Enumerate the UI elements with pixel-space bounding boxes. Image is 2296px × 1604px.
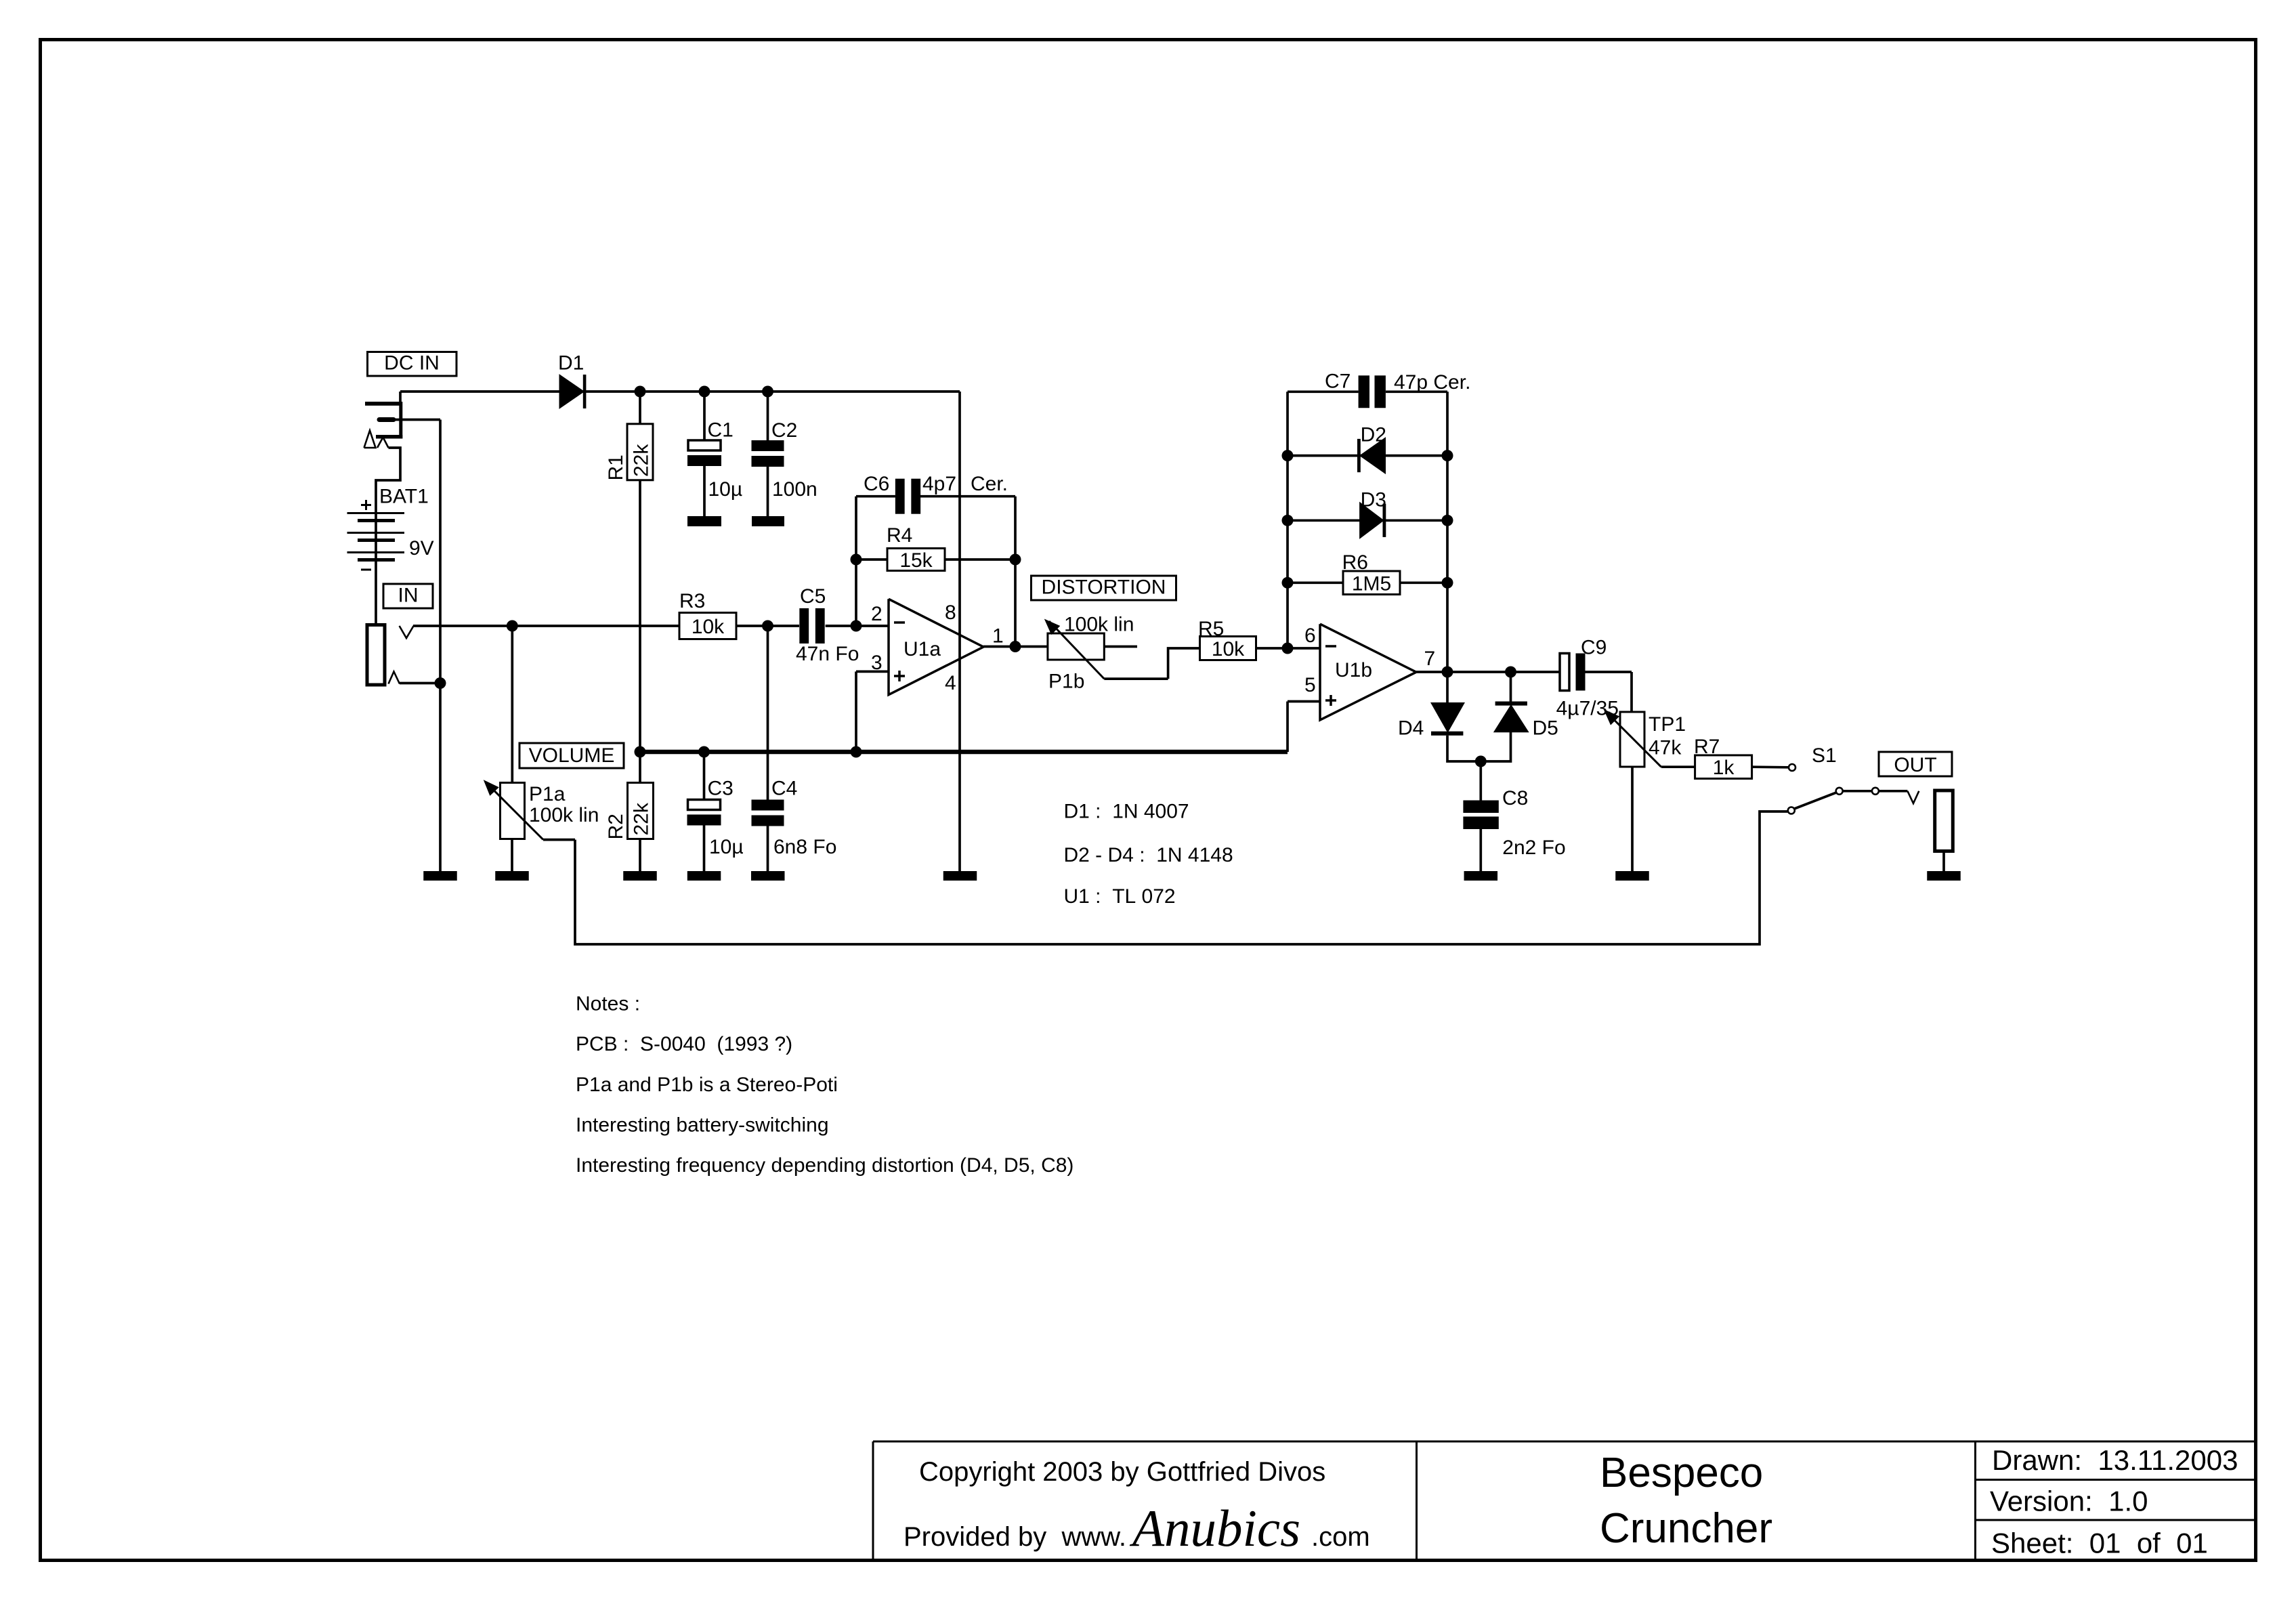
svg-text:D1: D1 [558,352,584,375]
svg-text:1: 1 [992,625,1004,648]
svg-text:22k: 22k [631,802,653,835]
svg-text:C2: C2 [771,419,797,442]
svg-text:Bespeco: Bespeco [1600,1450,1763,1496]
svg-text:TP1: TP1 [1649,713,1686,736]
svg-text:10µ: 10µ [708,478,743,501]
svg-text:PCB : S-0040 (1993 ?): PCB : S-0040 (1993 ?) [576,1033,792,1055]
svg-text:Interesting frequency dependin: Interesting frequency depending distorti… [576,1154,1073,1177]
svg-text:BAT1: BAT1 [379,486,429,508]
svg-text:Provided by www.: Provided by www. [903,1522,1126,1552]
svg-text:100k lin: 100k lin [529,804,599,826]
svg-text:VOLUME: VOLUME [529,744,615,767]
svg-text:47n Fo: 47n Fo [796,643,859,665]
svg-text:D2 - D4 : 1N 4148: D2 - D4 : 1N 4148 [1064,844,1233,866]
svg-text:4: 4 [945,672,956,694]
svg-text:D1 : 1N 4007: D1 : 1N 4007 [1064,800,1189,822]
svg-text:Copyright 2003 by Gottfried Di: Copyright 2003 by Gottfried Divos [919,1457,1325,1487]
svg-text:U1b: U1b [1335,659,1372,681]
svg-text:22k: 22k [631,444,653,477]
svg-text:1k: 1k [1713,757,1735,779]
svg-text:C6: C6 [864,473,889,495]
svg-text:C3: C3 [708,777,734,799]
svg-text:Cruncher: Cruncher [1600,1505,1772,1552]
svg-text:Cer.: Cer. [971,473,1008,495]
svg-text:DISTORTION: DISTORTION [1042,576,1166,599]
svg-text:IN: IN [398,585,419,607]
svg-text:P1a and P1b is a Stereo-Poti: P1a and P1b is a Stereo-Poti [576,1074,838,1096]
svg-text:P1a: P1a [529,783,566,805]
svg-text:4p7: 4p7 [922,473,956,495]
svg-text:P1b: P1b [1048,671,1084,693]
svg-text:7: 7 [1424,648,1436,670]
svg-text:10k: 10k [1212,638,1245,660]
svg-text:C5: C5 [800,585,826,608]
svg-text:100n: 100n [772,478,817,501]
svg-text:R7: R7 [1694,736,1720,758]
svg-text:8: 8 [945,601,956,624]
svg-text:C7: C7 [1325,370,1351,392]
svg-text:R3: R3 [679,590,705,612]
svg-text:Notes :: Notes : [576,992,640,1015]
svg-text:R5: R5 [1198,618,1224,640]
svg-text:6: 6 [1304,625,1316,647]
svg-text:Version: 1.0: Version: 1.0 [1990,1485,2148,1517]
svg-text:D4: D4 [1398,717,1424,739]
svg-text:10µ: 10µ [709,836,744,858]
svg-text:C4: C4 [771,777,797,799]
svg-text:Sheet: 01 of 01: Sheet: 01 of 01 [1991,1527,2208,1559]
svg-text:S1: S1 [1812,744,1837,767]
svg-text:9V: 9V [409,537,434,560]
svg-text:R2: R2 [605,814,627,839]
svg-text:C9: C9 [1581,636,1607,658]
svg-text:Interesting battery-switching: Interesting battery-switching [576,1114,829,1137]
svg-text:2n2 Fo: 2n2 Fo [1502,837,1565,859]
svg-text:.com: .com [1311,1522,1370,1552]
svg-text:1M5: 1M5 [1352,572,1391,595]
svg-text:C8: C8 [1502,787,1528,809]
svg-text:2: 2 [871,603,883,625]
svg-text:Drawn: 13.11.2003: Drawn: 13.11.2003 [1992,1444,2238,1476]
svg-text:100k lin: 100k lin [1064,613,1134,635]
svg-text:U1a: U1a [903,638,941,660]
svg-text:3: 3 [871,652,883,674]
svg-text:6n8 Fo: 6n8 Fo [773,836,836,858]
svg-text:OUT: OUT [1894,754,1936,776]
svg-text:47p Cer.: 47p Cer. [1394,371,1470,394]
svg-text:5: 5 [1304,674,1316,696]
svg-text:15k: 15k [899,549,933,572]
svg-text:Anubics: Anubics [1129,1499,1300,1557]
svg-text:C1: C1 [708,419,734,442]
svg-text:47k: 47k [1649,737,1682,759]
svg-text:10k: 10k [692,616,725,638]
svg-text:U1 : TL 072: U1 : TL 072 [1064,885,1176,908]
svg-text:R4: R4 [887,524,912,547]
svg-text:D5: D5 [1533,717,1558,739]
svg-text:R6: R6 [1342,551,1368,574]
svg-text:D2: D2 [1361,424,1386,446]
svg-text:DC IN: DC IN [384,352,440,375]
svg-text:R1: R1 [605,455,627,480]
svg-text:D3: D3 [1361,488,1386,511]
